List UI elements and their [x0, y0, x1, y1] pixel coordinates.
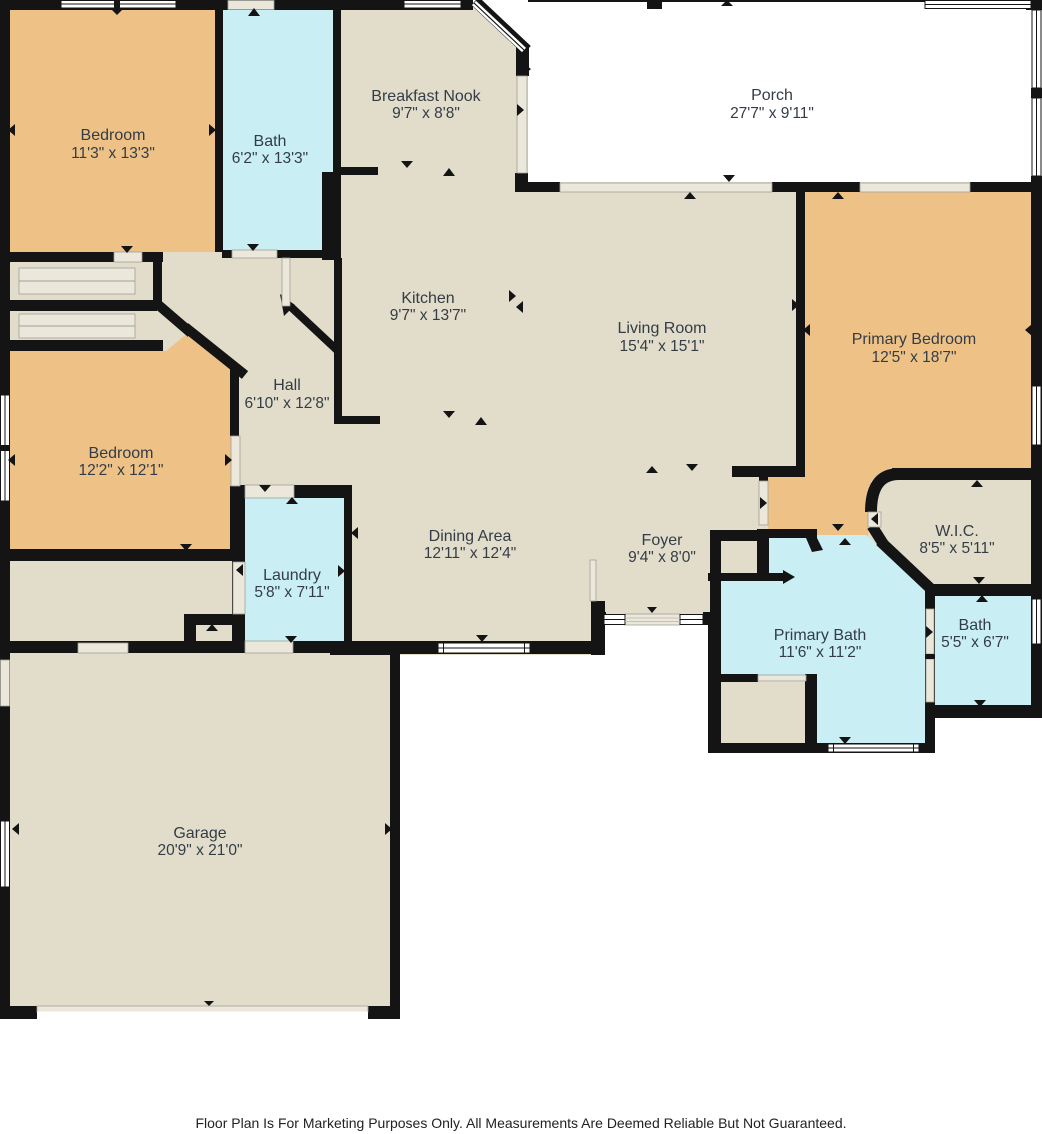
svg-text:Floor Plan Is For Marketing Pu: Floor Plan Is For Marketing Purposes Onl…: [195, 1115, 846, 1131]
svg-text:6'10" x 12'8": 6'10" x 12'8": [244, 395, 329, 412]
svg-text:Bedroom: Bedroom: [81, 127, 146, 144]
svg-text:W.I.C.: W.I.C.: [935, 523, 979, 540]
svg-text:11'6" x 11'2": 11'6" x 11'2": [779, 644, 862, 661]
svg-text:9'7" x 13'7": 9'7" x 13'7": [390, 307, 466, 324]
svg-text:15'4" x 15'1": 15'4" x 15'1": [619, 338, 704, 355]
svg-text:Primary Bedroom: Primary Bedroom: [852, 331, 976, 348]
svg-text:20'9" x 21'0": 20'9" x 21'0": [157, 842, 242, 859]
svg-text:Bedroom: Bedroom: [89, 445, 154, 462]
svg-text:Laundry: Laundry: [263, 567, 321, 584]
svg-text:12'2" x 12'1": 12'2" x 12'1": [78, 462, 163, 479]
svg-text:8'5" x 5'11": 8'5" x 5'11": [919, 540, 994, 557]
svg-text:Primary Bath: Primary Bath: [774, 627, 866, 644]
svg-text:Living Room: Living Room: [618, 320, 707, 337]
svg-text:6'2" x 13'3": 6'2" x 13'3": [232, 150, 308, 167]
svg-text:Bath: Bath: [959, 617, 992, 634]
svg-text:Kitchen: Kitchen: [401, 290, 454, 307]
svg-text:12'5" x 18'7": 12'5" x 18'7": [871, 349, 956, 366]
svg-text:9'4" x 8'0": 9'4" x 8'0": [628, 549, 696, 566]
svg-text:Dining Area: Dining Area: [429, 528, 512, 545]
svg-text:Breakfast Nook: Breakfast Nook: [371, 88, 481, 105]
svg-text:Porch: Porch: [751, 87, 793, 104]
svg-text:12'11" x 12'4": 12'11" x 12'4": [424, 545, 516, 562]
svg-text:5'5" x 6'7": 5'5" x 6'7": [941, 634, 1009, 651]
svg-text:27'7" x 9'11": 27'7" x 9'11": [730, 105, 814, 122]
svg-text:5'8" x 7'11": 5'8" x 7'11": [254, 584, 329, 601]
svg-text:Bath: Bath: [254, 133, 287, 150]
svg-text:9'7" x 8'8": 9'7" x 8'8": [392, 105, 460, 122]
svg-text:Hall: Hall: [273, 377, 301, 394]
svg-text:11'3" x 13'3": 11'3" x 13'3": [71, 145, 155, 162]
svg-text:Garage: Garage: [173, 825, 226, 842]
svg-text:Foyer: Foyer: [642, 532, 684, 549]
